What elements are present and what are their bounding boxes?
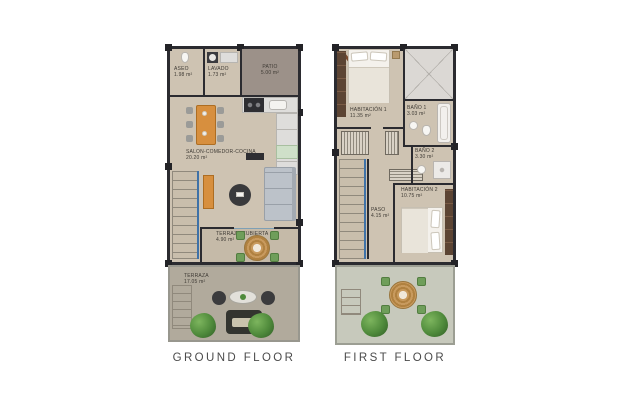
chair-icon [217,107,224,114]
laundry-counter [220,52,238,63]
stairs-icon [339,159,366,259]
pillow-icon [430,232,440,251]
pouf-icon [261,291,275,305]
room-label-patio: PATIO 5.00 m² [242,64,298,76]
ground-terrace: TERRAZA 17.05 m² [168,265,300,342]
wall [393,183,395,262]
chair-icon [186,121,193,128]
tv-bench-icon [246,153,264,160]
chair-icon [217,121,224,128]
chair-icon [186,107,193,114]
toilet-icon [181,52,189,63]
wall [203,49,205,95]
wall-pillar [165,44,172,51]
stairs-icon [172,171,199,259]
ground-floor-plan: ASEO 1.98 m² LAVADO 1.73 m² PATIO 5.00 m… [167,46,301,346]
wall-pillar [165,163,172,170]
pillow-icon [370,51,388,61]
duvet [349,67,389,103]
bush-icon [190,313,216,338]
first-floor-caption: FIRST FLOOR [334,352,456,364]
room-label-aseo: ASEO 1.98 m² [174,66,192,78]
room-area: 10.75 m² [401,193,438,199]
cooktop-icon [244,98,264,112]
wall-pillar [332,149,339,156]
magazine-icon [236,192,244,197]
stair-railing-icon [197,171,199,259]
bush-icon [361,311,388,337]
room-label-terraza: TERRAZA 17.05 m² [184,273,209,285]
wall [411,147,413,183]
room-area: 1.73 m² [208,72,229,78]
wall [403,49,405,145]
wall [367,159,369,259]
room-label-lavado: LAVADO 1.73 m² [208,66,229,78]
plate-icon [202,111,207,116]
toilet-icon [422,125,431,136]
washing-machine-icon [207,52,218,63]
room-label-habitacion1: HABITACIÓN 1 11.35 m² [350,107,387,119]
wall [337,127,371,129]
room-label-bano1: BAÑO 1 3.03 m² [407,105,427,117]
wardrobe-icon [445,189,453,255]
first-floor-terrace [335,265,455,345]
patio-chair-icon [417,305,426,314]
room-label-habitacion2: HABITACIÓN 2 10.75 m² [401,187,438,199]
bush-icon [248,313,274,338]
pillow-icon [430,210,440,229]
first-floor-plan: HABITACIÓN 1 11.35 m² BAÑO 1 3.03 m² BAÑ… [334,46,456,346]
stair-railing-icon [364,159,366,259]
bush-icon [421,311,448,337]
bathtub-icon [437,103,451,143]
wall-pillar [332,44,339,51]
room-label-bano2: BAÑO 2 3.30 m² [415,148,435,160]
floor-plan-image: ASEO 1.98 m² LAVADO 1.73 m² PATIO 5.00 m… [0,0,620,415]
patio-chair-icon [236,231,245,240]
kitchen-green-unit [276,145,298,159]
patio-chair-icon [417,277,426,286]
room-label-paso: PASO 4.15 m² [371,207,389,219]
room-area: 3.30 m² [415,154,435,160]
plant-icon [240,294,246,300]
glass-door [234,228,274,229]
shower-icon [433,161,451,179]
wall [200,227,202,262]
exterior-stair-icon [172,285,192,329]
kitchen-cabinets [276,113,298,175]
room-area: 11.35 m² [350,113,387,119]
plate-icon [202,131,207,136]
patio-chair-icon [381,277,390,286]
wall [383,127,403,129]
rattan-table-icon [389,281,417,309]
ground-floor-caption: GROUND FLOOR [167,352,301,364]
wall [200,227,234,229]
wall [393,183,453,185]
wall [274,227,298,229]
chair-icon [217,135,224,142]
ground-floor-built-area: ASEO 1.98 m² LAVADO 1.73 m² PATIO 5.00 m… [167,46,301,265]
pouf-icon [212,291,226,305]
patio-chair-icon [270,231,279,240]
sink-icon [417,165,426,174]
room-area: 4.15 m² [371,213,389,219]
wardrobe-icon [337,51,346,117]
wall [403,99,453,101]
sideboard-icon [203,175,214,209]
nightstand-icon [392,51,400,59]
patio-void [405,49,453,99]
room-area: 5.00 m² [242,70,298,76]
rattan-table-icon [244,235,270,261]
wardrobe-icon [341,131,369,155]
wardrobe-icon [385,131,399,155]
room-area: 3.03 m² [407,111,427,117]
sofa-icon [264,167,296,221]
pillow-icon [351,51,369,61]
wall-pillar [296,219,303,226]
room-area: 1.98 m² [174,72,192,78]
first-floor-built-area: HABITACIÓN 1 11.35 m² BAÑO 1 3.03 m² BAÑ… [334,46,456,265]
kitchen-sink-icon [269,100,287,110]
patio-chair-icon [270,253,279,262]
exterior-stair-icon [341,289,361,315]
duvet [402,208,428,253]
sink-icon [409,121,418,130]
patio-chair-icon [236,253,245,262]
chair-icon [186,135,193,142]
